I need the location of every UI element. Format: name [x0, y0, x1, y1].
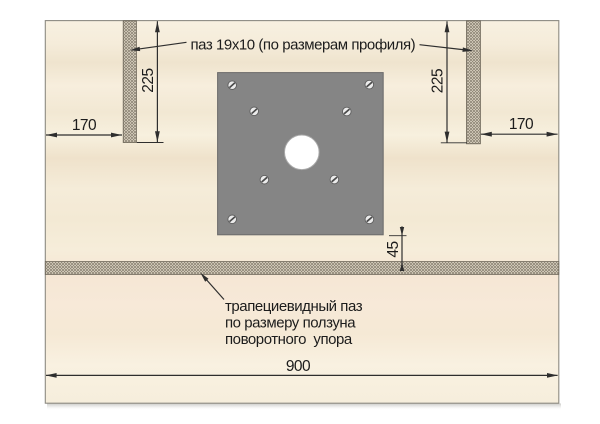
svg-text:900: 900	[286, 358, 311, 375]
svg-text:170: 170	[509, 116, 534, 133]
svg-text:по размеру ползуна: по размеру ползуна	[225, 315, 356, 332]
svg-text:трапециевидный паз: трапециевидный паз	[225, 298, 363, 315]
svg-text:170: 170	[72, 117, 97, 134]
svg-text:поворотного упора: поворотного упора	[225, 331, 353, 348]
svg-text:225: 225	[429, 69, 446, 93]
svg-text:паз 19х10 (по размерам профиля: паз 19х10 (по размерам профиля)	[191, 37, 416, 54]
svg-text:45: 45	[385, 241, 402, 257]
svg-text:225: 225	[140, 68, 157, 92]
